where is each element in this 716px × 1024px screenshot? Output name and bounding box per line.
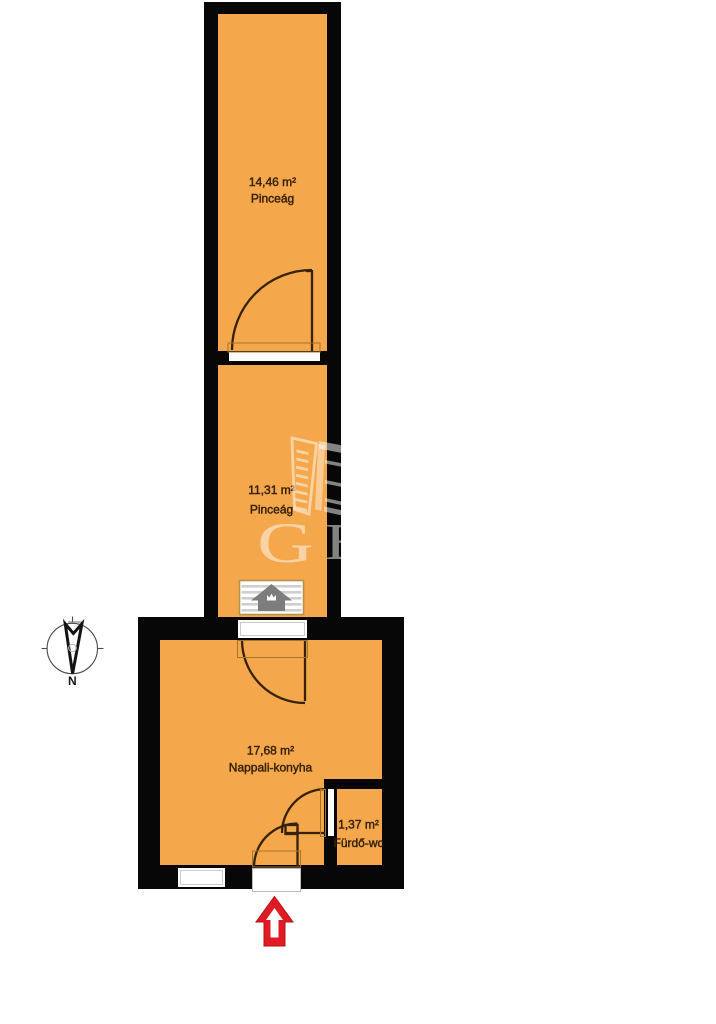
svg-text:E: E [325,513,366,571]
svg-text:N: N [68,674,77,688]
svg-text:14,46 m²: 14,46 m² [249,175,296,189]
svg-text:11,31 m²: 11,31 m² [248,483,294,497]
svg-text:G: G [257,511,313,574]
svg-text:Nappali-konyha: Nappali-konyha [229,761,313,775]
svg-text:Fürdő-wc: Fürdő-wc [333,836,383,850]
svg-text:17,68 m²: 17,68 m² [247,744,294,758]
svg-text:1,37 m²: 1,37 m² [338,818,379,832]
svg-text:Pinceág: Pinceág [251,192,294,206]
